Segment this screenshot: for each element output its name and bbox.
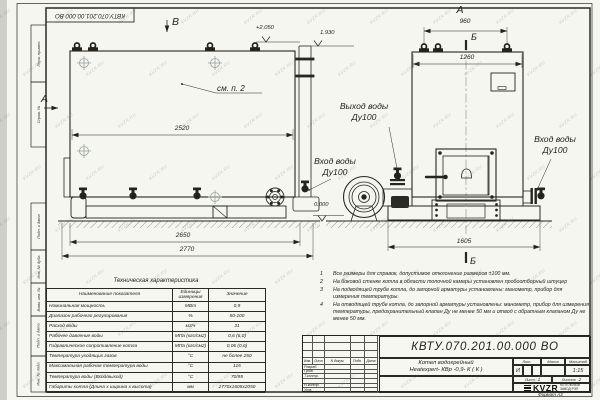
drawing-sheet: КВТУ.070.201.00.000 ВО В А см. п. 2 +2.0… <box>0 0 600 400</box>
elevation-zero-label: 0.000 <box>314 203 329 209</box>
boiler-side-view <box>44 20 354 260</box>
cell <box>365 351 378 358</box>
sheets-label: Листов <box>562 378 576 382</box>
cell <box>351 343 365 350</box>
lifting-lug-icon <box>206 43 215 51</box>
control-box <box>491 73 515 91</box>
titleblock-doc-number: КВТУ.070.201.00.000 ВО <box>379 336 591 358</box>
company-line2: ЗАВОД РЭП <box>560 388 580 392</box>
stamp-podp-data-2: Подп. и дата <box>31 316 46 356</box>
cell <box>365 343 378 350</box>
port-out-line1: Выход воды <box>333 101 395 112</box>
cell: Значение <box>209 289 265 302</box>
sheet-value: 1 <box>538 377 541 382</box>
mass-header: Масса <box>541 358 565 365</box>
cell: МВт <box>173 302 209 312</box>
stamp-perv-primen: Перв. примен. <box>31 25 46 82</box>
cell <box>313 343 325 350</box>
sheet-cell: Лист 1 <box>513 376 552 383</box>
titleblock-blank-cell <box>379 376 513 393</box>
cell: % <box>173 312 209 322</box>
side-base <box>71 197 286 218</box>
dim-960-label: 960 <box>445 19 485 26</box>
scale-value: 1:15 <box>565 365 591 376</box>
lifting-lug-icon <box>89 43 98 51</box>
front-body <box>412 52 523 197</box>
view-b-label: В <box>172 17 179 28</box>
cell: Все размеры для справок, допустимое откл… <box>333 271 511 278</box>
lifting-lug-icon <box>251 43 260 51</box>
cell: Номинальная мощность <box>47 302 173 312</box>
lit-cell-2 <box>523 365 532 376</box>
stamp-vzam-inv: Взам. инв. № <box>31 283 46 316</box>
cell <box>365 388 378 393</box>
format-label: Формат А3 <box>538 393 563 398</box>
cell: 4 <box>320 302 333 323</box>
cell: не более 250 <box>209 352 265 362</box>
doc-number-top: КВТУ.070.201.00.000 ВО <box>46 8 134 22</box>
cell <box>303 343 313 350</box>
fan-support <box>351 206 377 221</box>
cell: Рабочее давление воды <box>47 332 173 342</box>
cell: 2 <box>320 279 333 286</box>
lit-cell-3 <box>532 365 541 376</box>
sight-glass <box>462 169 472 178</box>
title-block: Изм.ЛистN докум.Подп.ДатаРазраб.Пров.Т.к… <box>302 335 590 392</box>
position-mark-icon <box>208 56 222 70</box>
cell: 0,6 (6,0) <box>209 332 265 342</box>
cell: 0,06 (0,6) <box>209 342 265 352</box>
cell <box>325 343 351 350</box>
ground-hatch <box>326 222 552 229</box>
lit-header: Лит. <box>513 358 541 365</box>
cell <box>313 336 325 343</box>
port-in-right-line1: Вход воды <box>523 134 587 145</box>
cell: Максимальная рабочая температура воды <box>47 363 173 373</box>
cell <box>351 388 365 393</box>
cell: Температура уходящих газов <box>47 352 173 362</box>
cell <box>325 336 351 343</box>
stamp-podp-data-1: Подп. и дата <box>31 203 46 250</box>
notes-list: 1Все размеры для справок, допустимое отк… <box>320 271 590 324</box>
stamp-inv-dubl: Инв. № дубл. <box>31 250 46 283</box>
cell: МПа (кгс/см2) <box>173 332 209 342</box>
side-panel-box <box>64 158 70 197</box>
cell: 70/95 <box>209 373 265 383</box>
port-in-left-label: Вход воды Ду100 <box>306 156 364 178</box>
tech-table: Наименование показателяЕдиницы измерения… <box>46 288 266 392</box>
zero-elevation-mark <box>313 216 344 222</box>
cell: Температура воды (Вход/выход) <box>47 373 173 383</box>
stamp-sprav-n: Справ. № <box>31 82 46 147</box>
scale-header: Масштаб <box>565 358 591 365</box>
elevation-top-label: +2.050 <box>256 26 274 32</box>
cell <box>303 351 313 358</box>
cell: 1 <box>320 271 333 278</box>
dim-2650-label: 2650 <box>163 233 203 240</box>
cell: м3/ч <box>173 322 209 332</box>
cell: мм <box>173 383 209 393</box>
lifting-lug-icon <box>420 44 429 52</box>
cell: МПа (кгс/см2) <box>173 342 209 352</box>
position-mark-icon <box>208 190 222 204</box>
stamp-inv-podl: Инв. № подл. <box>31 356 46 392</box>
port-out-label: Выход воды Ду100 <box>333 101 395 123</box>
port-in-right-label: Вход воды Ду100 <box>523 134 587 156</box>
sheets-cell: Листов 2 <box>552 376 591 383</box>
cell: На боковой стенке котла в области топочн… <box>333 279 567 286</box>
cell: Наименование показателя <box>47 289 173 302</box>
port-in-left-line1: Вход воды <box>306 156 364 167</box>
cell <box>351 351 365 358</box>
kvzr-logo-icon <box>524 385 531 392</box>
mass-value <box>541 365 565 376</box>
elevation-marks <box>256 37 354 47</box>
cell: 0,9 <box>209 302 265 312</box>
titleblock-left-grid: Изм.ЛистN докум.Подп.ДатаРазраб.Пров.Т.к… <box>303 336 380 393</box>
cell: Дата <box>365 358 378 365</box>
sheets-value: 2 <box>579 377 582 382</box>
cell: °С <box>173 352 209 362</box>
furnace-door <box>426 149 496 201</box>
sheet-label: Лист <box>525 378 535 382</box>
cell <box>313 351 325 358</box>
cell: °С <box>173 373 209 383</box>
outlet-riser <box>390 179 409 208</box>
drain-valve-icon <box>130 188 137 199</box>
cell: Диапазон рабочего регулирования <box>47 312 173 322</box>
cell: 3 <box>320 287 333 301</box>
cell: На подводящей трубе котла, до запорной а… <box>333 287 590 301</box>
blower-fan <box>344 177 385 222</box>
dim-2520-label: 2520 <box>162 126 202 133</box>
position-mark-icon <box>77 56 91 70</box>
cell: Изм. <box>303 358 313 365</box>
section-b-bottom-label: Б <box>470 257 476 266</box>
see-note-label: см. п. 2 <box>217 85 245 93</box>
view-a-front-label: А <box>450 5 470 16</box>
drain-valve-icon <box>194 188 201 199</box>
cell: 2770х1605х2050 <box>209 383 265 393</box>
cell: Утв. <box>303 388 325 393</box>
port-out-line2: Ду100 <box>333 112 395 123</box>
cell: Единицы измерения <box>173 289 209 302</box>
cell <box>365 336 378 343</box>
cell: Расход воды <box>47 322 173 332</box>
cell <box>351 336 365 343</box>
dim-1260-label: 1260 <box>447 55 487 62</box>
product-name-line2: Heatexpert- КВр -0,9- К ( К ) <box>409 367 482 375</box>
dim-1605-label: 1605 <box>444 239 484 246</box>
elevation-flue-label: 1.930 <box>320 31 335 37</box>
boiler-front-view <box>308 27 552 263</box>
product-name-line1: Котел водогрейный <box>418 360 473 368</box>
cell: °С <box>173 363 209 373</box>
cell: 50-100 <box>209 312 265 322</box>
cell: N докум. <box>325 358 351 365</box>
cell: Гидравлическое сопротивление котла <box>47 342 173 352</box>
lit-value: И <box>513 365 523 376</box>
cell: 31 <box>209 322 265 332</box>
boiler-shell <box>70 51 295 197</box>
cell: 115 <box>209 363 265 373</box>
lifting-lug-icon <box>503 44 512 52</box>
cell: Подп. <box>351 358 365 365</box>
position-mark-icon <box>77 144 91 158</box>
section-b-top-label: Б <box>471 33 477 42</box>
outlet-valve-icon <box>394 168 401 179</box>
lifting-lug-icon <box>73 43 82 51</box>
duct-valve-icon <box>302 181 309 192</box>
cell <box>325 388 351 393</box>
lifting-lug-icon <box>434 44 443 52</box>
port-in-right-line2: Ду100 <box>523 145 587 156</box>
right-inlet-valve <box>523 188 537 204</box>
cell <box>325 351 351 358</box>
cell: Габариты котла (Длина х ширина х высота) <box>47 383 173 393</box>
right-valve-icon <box>538 188 545 199</box>
titleblock-name: Котел водогрейный Heatexpert- КВр -0,9- … <box>379 358 513 376</box>
company-name: КОТЕЛЬНЫЙ ЗАВОД РЭП <box>560 384 580 391</box>
tech-table-title: Техническая характеристика <box>46 278 266 284</box>
port-in-left-line2: Ду100 <box>306 167 364 178</box>
dim-2770-label: 2770 <box>167 247 207 254</box>
cell <box>303 336 313 343</box>
cell: Лист <box>313 358 325 365</box>
cell: На отводящей трубе котла, до запорной ар… <box>333 302 590 323</box>
ground-hatch <box>58 222 320 229</box>
